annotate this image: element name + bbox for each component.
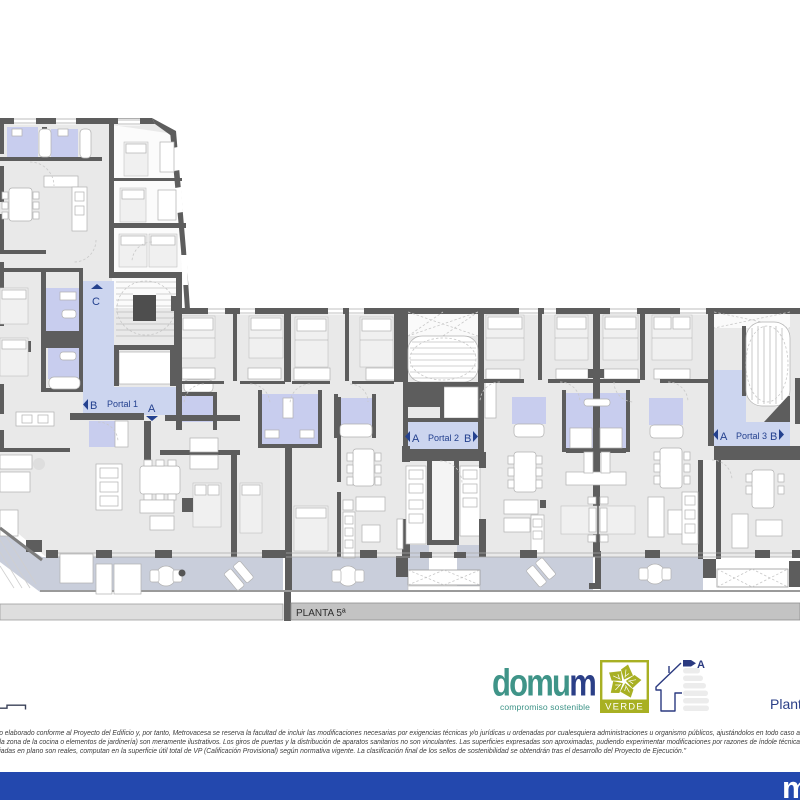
svg-text:VERDE: VERDE — [605, 702, 644, 713]
svg-text:A: A — [697, 659, 705, 671]
svg-text:n la zona de la cocina o eleme: n la zona de la cocina o elementos de ja… — [0, 739, 800, 746]
svg-text:Portal 2: Portal 2 — [428, 433, 459, 443]
svg-text:ido elaborado conforme al Proy: ido elaborado conforme al Proyecto del E… — [0, 730, 800, 737]
svg-text:lejadas en plano son reales, c: lejadas en plano son reales, computan en… — [0, 748, 687, 755]
svg-text:Portal 1: Portal 1 — [107, 399, 138, 409]
svg-text:B: B — [464, 433, 471, 445]
svg-text:B: B — [90, 400, 97, 412]
svg-text:Portal 3: Portal 3 — [736, 431, 767, 441]
svg-text:B: B — [770, 431, 777, 443]
svg-text:A: A — [720, 431, 728, 443]
svg-text:A: A — [148, 403, 156, 415]
svg-text:A: A — [412, 433, 420, 445]
svg-text:PLANTA 5ª: PLANTA 5ª — [296, 608, 346, 619]
svg-text:C: C — [92, 296, 100, 308]
